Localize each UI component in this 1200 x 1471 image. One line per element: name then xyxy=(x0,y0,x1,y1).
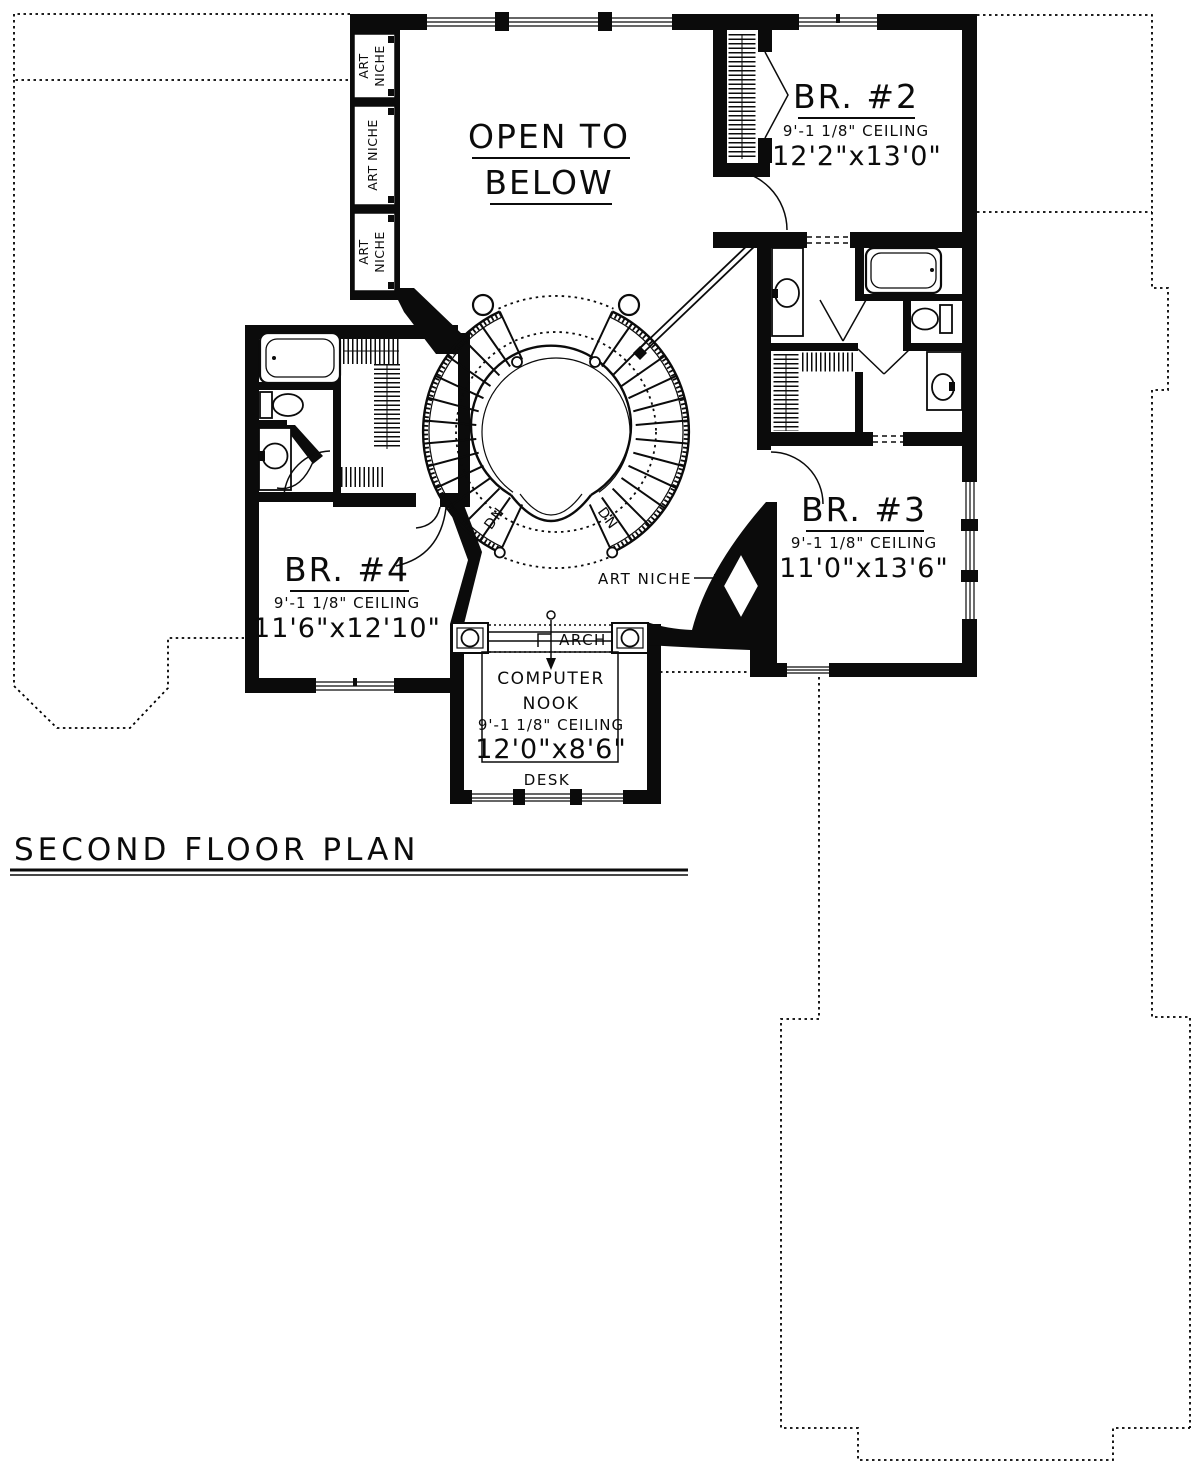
art-niches: ART NICHE ART NICHE ART NICHE xyxy=(354,34,395,291)
sink-faucet xyxy=(949,382,955,391)
br2-name: BR. #2 xyxy=(793,77,919,116)
sink-faucet xyxy=(259,451,265,461)
stair-well-edge xyxy=(471,346,631,495)
window-br3-bottom xyxy=(783,663,833,677)
art-niche-1-label-art: ART xyxy=(356,53,371,78)
stair-entry-arc-inner xyxy=(520,494,582,515)
open-below-line1: OPEN TO xyxy=(468,117,630,156)
door-arc-br2 xyxy=(727,170,787,230)
sink-basin xyxy=(775,279,799,307)
window-computer-nook xyxy=(468,789,627,805)
stair-newel-post xyxy=(619,295,639,315)
stair-post xyxy=(495,548,505,558)
label-open-to-below: OPEN TO BELOW xyxy=(468,117,630,204)
double-door-bath-upper xyxy=(820,300,866,341)
toilet-bowl xyxy=(912,309,938,330)
nook-size: 12'0"x8'6" xyxy=(475,734,627,765)
plan-title-text: SECOND FLOOR PLAN xyxy=(14,832,420,868)
bathtub-drain xyxy=(930,268,934,272)
toilet-bowl xyxy=(273,394,303,416)
window-br4 xyxy=(312,678,398,693)
sink-faucet xyxy=(772,289,778,298)
toilet-tank xyxy=(940,305,952,333)
floor-plan-canvas: ART NICHE ART NICHE ART NICHE xyxy=(0,0,1200,1471)
br2-ceiling: 9'-1 1/8" CEILING xyxy=(783,122,929,140)
br3-name: BR. #3 xyxy=(801,490,927,529)
roof-outline-right xyxy=(977,15,1190,1428)
stair-entry-arc xyxy=(511,495,591,521)
column-right xyxy=(612,623,648,653)
bathtub-inner xyxy=(266,339,334,377)
stair-post xyxy=(590,357,600,367)
open-below-line2: BELOW xyxy=(484,163,613,202)
stair-dn-left: DN xyxy=(481,505,508,533)
sink-basin xyxy=(263,444,288,469)
arch-label: ARCH xyxy=(559,631,607,649)
toilet-left xyxy=(260,392,303,418)
br2-size: 12'2"x13'0" xyxy=(772,141,942,172)
window-br3-right xyxy=(961,478,978,623)
art-niche-center-label: ART NICHE xyxy=(598,570,692,588)
art-niche-2-label: ART NICHE xyxy=(365,119,380,191)
stair-post xyxy=(607,548,617,558)
nook-ceiling: 9'-1 1/8" CEILING xyxy=(478,716,624,734)
bathtub-inner xyxy=(871,253,936,288)
label-br2: BR. #2 9'-1 1/8" CEILING 12'2"x13'0" xyxy=(772,77,942,172)
opening-br2-bath xyxy=(807,232,850,248)
stair-open-dashed-arcs xyxy=(499,296,614,568)
column-shaft xyxy=(622,630,639,647)
desk-label: DESK xyxy=(524,771,570,789)
br3-ceiling: 9'-1 1/8" CEILING xyxy=(791,534,937,552)
double-door-bath-lower xyxy=(858,349,910,374)
stair-dn-right: DN xyxy=(594,505,621,533)
nook-line2: NOOK xyxy=(523,694,580,714)
stair-newel-post xyxy=(473,295,493,315)
window-glass xyxy=(468,790,627,804)
br4-size: 11'6"x12'10" xyxy=(253,613,441,644)
plan-title: SECOND FLOOR PLAN xyxy=(10,832,688,875)
label-br3: BR. #3 9'-1 1/8" CEILING 11'0"x13'6" xyxy=(779,490,949,584)
vanity-upper xyxy=(772,248,803,336)
bathtub-left xyxy=(260,333,340,383)
railing-post xyxy=(633,346,647,360)
art-niche-1-label-niche: NICHE xyxy=(372,45,387,87)
door-arc-br4-closet xyxy=(416,507,440,528)
br4-name: BR. #4 xyxy=(284,550,410,589)
arch-leader-hook xyxy=(547,611,555,619)
art-niche-3-label-art: ART xyxy=(356,239,371,264)
stair-well-edge-inner xyxy=(482,358,630,492)
window-open-below xyxy=(422,12,677,31)
railing-line xyxy=(642,244,757,354)
railing-line xyxy=(638,240,753,350)
br3-size: 11'0"x13'6" xyxy=(779,553,949,584)
roof-outline-bottom xyxy=(781,677,1190,1460)
bathtub-drain xyxy=(272,356,276,360)
label-computer-nook: COMPUTER NOOK 9'-1 1/8" CEILING 12'0"x8'… xyxy=(475,669,627,765)
floor-plan-page: ART NICHE ART NICHE ART NICHE xyxy=(0,0,1200,1471)
sink-left xyxy=(259,428,291,490)
bathtub-right xyxy=(866,248,941,293)
column-shaft xyxy=(462,630,479,647)
toilet-right xyxy=(912,305,952,333)
nook-line1: COMPUTER xyxy=(497,669,605,689)
opening-bath-br3 xyxy=(873,432,903,446)
br4-ceiling: 9'-1 1/8" CEILING xyxy=(274,594,420,612)
stair-post xyxy=(512,357,522,367)
toilet-tank xyxy=(260,392,272,418)
window-br2 xyxy=(795,14,881,30)
art-niche-3-label-niche: NICHE xyxy=(372,231,387,273)
vanity-lower xyxy=(927,352,962,410)
label-br4: BR. #4 9'-1 1/8" CEILING 11'6"x12'10" xyxy=(253,550,441,644)
column-left xyxy=(452,623,488,653)
